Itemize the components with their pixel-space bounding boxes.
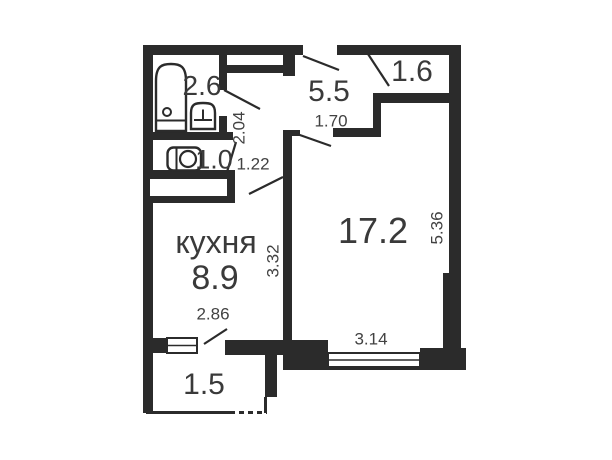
balcony-block-window-icon	[167, 338, 197, 353]
kitchen-width-dimension: 2.86	[196, 306, 229, 323]
toilet-area-label: 1.0	[195, 147, 233, 174]
living-depth-dimension: 5.36	[429, 211, 446, 244]
kitchen-depth-dimension: 3.32	[265, 244, 282, 277]
wall-left	[143, 45, 153, 413]
bathtub-icon	[156, 64, 186, 131]
living-width-dimension: 3.14	[354, 331, 387, 348]
wall-kitchen-bottom	[225, 340, 283, 355]
built-in-closet	[150, 179, 227, 196]
floor-plan-drawing	[0, 0, 612, 460]
storage-area-label: 1.6	[391, 57, 433, 87]
balcony-door-swing-icon	[204, 329, 227, 344]
bathroom-door-swing-icon	[224, 90, 260, 109]
wall-kitchen-living-divider	[283, 130, 292, 355]
wall-entry-jamb	[283, 45, 295, 76]
wall-balcony-partition	[265, 355, 277, 397]
living-door-swing-icon	[297, 134, 331, 146]
living-area-label: 17.2	[338, 213, 408, 249]
wall-storage-bottom	[373, 93, 459, 103]
bathroom-area-label: 2.6	[183, 72, 222, 100]
wall-balcony-block-left	[143, 338, 167, 353]
balcony-right-thin-wall	[264, 397, 267, 413]
floor-plan-canvas: 2.6 1.0 5.5 1.6 кухня 8.9 17.2 1.5 2.04 …	[0, 0, 612, 460]
wall-bath-bottom	[143, 132, 233, 140]
hallway-area-label: 5.5	[308, 77, 350, 107]
kitchen-name-label: кухня	[175, 226, 256, 258]
hall-depth-dimension: 2.04	[231, 111, 248, 144]
wall-right-lower	[443, 273, 461, 353]
kitchen-area-label: 8.9	[191, 261, 238, 295]
wall-corner-kitchen-living	[283, 340, 328, 370]
sink-icon	[191, 103, 215, 129]
entrance-door-swing-icon	[303, 56, 339, 70]
balcony-area-label: 1.5	[183, 370, 225, 400]
wall-top-right	[337, 45, 459, 55]
toilet-width-dimension: 1.22	[236, 156, 269, 173]
wall-right-upper	[449, 45, 461, 273]
hallway-width-dimension: 1.70	[314, 113, 347, 130]
storage-door-swing-icon	[368, 54, 389, 86]
kitchen-door-swing-icon	[249, 177, 283, 194]
living-window-icon	[328, 353, 420, 367]
balcony-bottom-thin-wall	[146, 411, 230, 414]
wall-top-left	[143, 45, 303, 55]
